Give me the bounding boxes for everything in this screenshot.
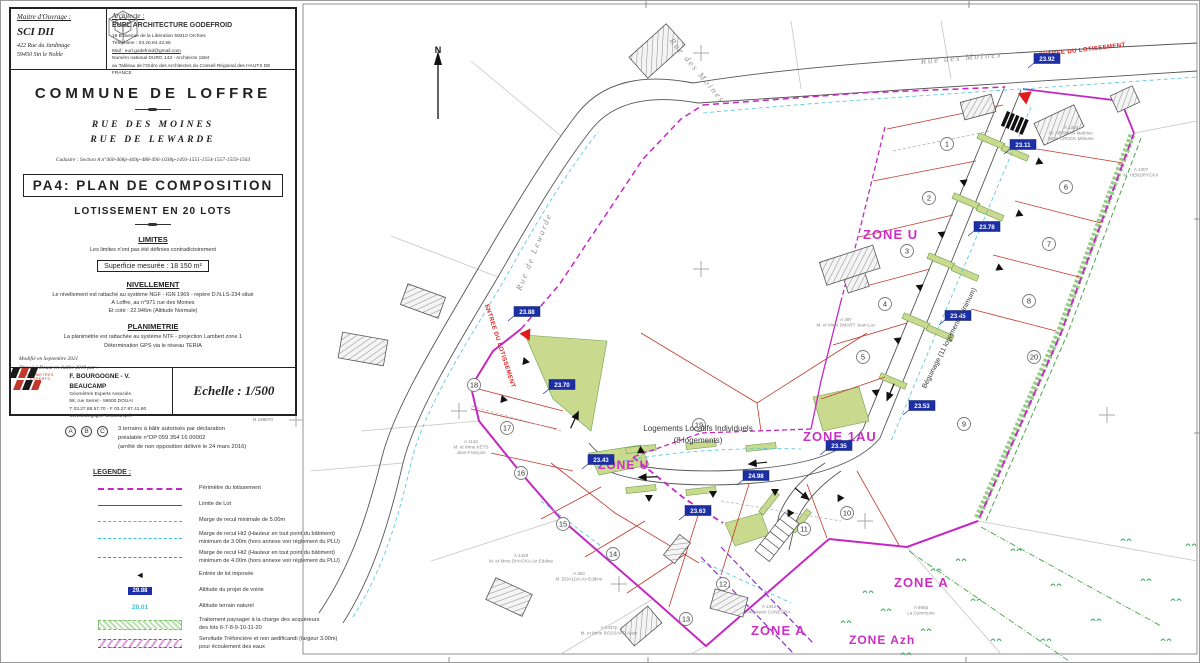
altitude-value: 23.35 bbox=[831, 443, 847, 450]
setback-lines-gray bbox=[471, 131, 991, 521]
zone-labels: ZONE UZONE 1AUZONE UZONE AZONE AZONE Azh bbox=[598, 227, 949, 647]
legend-row: Limite de Lot bbox=[93, 499, 343, 511]
surveyor-address: 58, rue Serret - 59500 DOUAI bbox=[69, 398, 167, 405]
legend-swatch-sample bbox=[98, 521, 182, 522]
lot-number-badge: 1 bbox=[941, 138, 954, 151]
abc-authorization-note: ABC 3 terrains à bâtir autorisés par déc… bbox=[65, 425, 246, 452]
plan-annotation: Logements Locatifs Individuels bbox=[643, 424, 752, 433]
architect-row: EURL ARCHITECTURE GODEFROID 18 B avenue … bbox=[112, 21, 290, 77]
legend-swatch-altbox: 29.88 bbox=[93, 585, 187, 597]
architect-note2: au Tableau de l'Ordre des Architectes du… bbox=[112, 63, 290, 78]
east-landscape-band bbox=[977, 135, 1141, 523]
legend-row: Servitude Tréfoncière et non aedificandi… bbox=[93, 636, 343, 651]
abc-note-line: préalable n°DP 059 354 16 00002 bbox=[118, 434, 246, 443]
vegetation-symbol bbox=[841, 621, 851, 623]
planimetrie-line1: La planimétrie est rattachée au système … bbox=[11, 333, 295, 341]
legend-row: 28.01Altitude terrain naturel bbox=[93, 601, 343, 613]
title-block-footer: GEOMETRES EXPERTS F. BOURGOGNE - V. BEAU… bbox=[11, 367, 295, 414]
altitude-value: 23.63 bbox=[690, 508, 706, 515]
parcel-owner-label: A 497M. et Mme SMART Jean-Luc bbox=[816, 317, 876, 328]
nivellement-line2: A Loffre, au n°971 rue des Moines bbox=[11, 299, 295, 307]
plan-annotation: (8 logements) bbox=[674, 436, 723, 445]
street-name-label: Rue de Lewarde bbox=[513, 211, 554, 293]
limites-text: Les limites n'ont pas été définies contr… bbox=[11, 246, 295, 254]
altitude-value: 23.43 bbox=[593, 457, 609, 464]
street-title-1: RUE DES MOINES bbox=[11, 118, 295, 133]
legend-swatch-sample bbox=[98, 488, 182, 490]
crosswalk bbox=[1001, 111, 1029, 135]
title-block-body: COMMUNE DE LOFFRE RUE DES MOINES RUE DE … bbox=[11, 85, 295, 372]
superficie-box: Superficie mesurée : 18 150 m² bbox=[97, 260, 209, 272]
altitude-boxes: 23.9223.1123.7823.4523.5323.3524.9823.43… bbox=[508, 54, 1060, 521]
architect-note1: Numéro national DURG 143 - Architecte 15… bbox=[112, 55, 290, 62]
lot-entry-markers bbox=[500, 157, 1045, 519]
vegetation-symbol bbox=[1186, 544, 1196, 546]
lot-number-badge: 15 bbox=[557, 518, 570, 531]
scale-label: Echelle : 1/500 bbox=[173, 368, 295, 414]
legend-swatch-green4 bbox=[93, 552, 187, 564]
legend-row: Marge de recul Ht2 (Hauteur en tout poin… bbox=[93, 550, 343, 565]
legend-item-text: Marge de recul Ht2 (Hauteur en tout poin… bbox=[199, 531, 340, 546]
legend-item-text: Servitude Tréfoncière et non aedificandi… bbox=[199, 636, 337, 651]
altitude-leader bbox=[820, 450, 826, 455]
revision-line1: Modifié en Septembre 2021 bbox=[19, 355, 295, 364]
abc-badge: B bbox=[81, 426, 92, 437]
legend-item-text: Limite de Lot bbox=[199, 501, 231, 509]
legend-row: ◄Entrée de lot imposée bbox=[93, 569, 343, 581]
street-name-label: Rue des Moines bbox=[919, 49, 1002, 66]
legend-row: Traitement paysager à la charge des acqu… bbox=[93, 617, 343, 632]
zone-label: ZONE Azh bbox=[849, 633, 915, 647]
vegetation-symbol bbox=[1141, 579, 1151, 581]
altitude-box: 23.78 bbox=[968, 222, 1000, 237]
altitude-box: 23.63 bbox=[679, 506, 711, 521]
lot-number: 5 bbox=[861, 353, 865, 362]
architect-mail: Mail : eurl.godefroid@gmail.com bbox=[112, 48, 290, 55]
altitude-value: 24.98 bbox=[748, 473, 764, 480]
parcel-owner-label: A 463M. DDALDA Az-Eddine bbox=[556, 571, 603, 582]
altitude-box: 23.88 bbox=[508, 307, 540, 322]
legend-swatch-lotline bbox=[93, 499, 187, 511]
legend-item-text: Altitude du projet de voirie bbox=[199, 587, 264, 595]
abc-badges: ABC bbox=[65, 426, 108, 437]
altitude-value: 23.92 bbox=[1039, 56, 1055, 63]
altitude-value: 23.78 bbox=[979, 224, 995, 231]
north-arrow bbox=[434, 51, 442, 119]
altitude-leader bbox=[508, 316, 514, 321]
altitude-value: 23.11 bbox=[1015, 142, 1031, 149]
lot-number: 14 bbox=[609, 550, 617, 559]
vegetation-symbol bbox=[881, 609, 891, 611]
legend-row: Marge de recul minimale de 5.00m bbox=[93, 515, 343, 527]
lot-number: 15 bbox=[559, 520, 567, 529]
nivellement-title: NIVELLEMENT bbox=[11, 280, 295, 289]
street-name-label: Rue des Moines bbox=[667, 35, 728, 105]
altitude-leader bbox=[679, 515, 685, 520]
altitude-leader bbox=[1028, 63, 1034, 68]
legend: LEGENDE : Périmètre du lotissementLimite… bbox=[93, 469, 343, 655]
legend-swatch-sample bbox=[98, 505, 182, 506]
owner-name: SCI DII bbox=[17, 26, 100, 38]
abc-badge: A bbox=[65, 426, 76, 437]
document-subtitle: LOTISSEMENT EN 20 LOTS bbox=[11, 206, 295, 217]
altitude-value: 23.53 bbox=[914, 403, 930, 410]
parcel-owner-label: A 1429M. et Mme DHACKA Az-Eddine bbox=[489, 553, 554, 564]
legend-swatch-sample: 28.01 bbox=[132, 604, 148, 611]
street-title-2: RUE DE LEWARDE bbox=[11, 133, 295, 148]
entrance-label: ENTREE DU LOTISSEMENT bbox=[483, 304, 516, 389]
lot-number-badge: 16 bbox=[515, 467, 528, 480]
lot-number: 3 bbox=[905, 247, 909, 256]
commune-title: COMMUNE DE LOFFRE bbox=[11, 85, 295, 102]
lot-number-badge: 17 bbox=[501, 422, 514, 435]
vegetation-symbol bbox=[1171, 599, 1181, 601]
entrance-arrows bbox=[520, 87, 1032, 344]
legend-title: LEGENDE : bbox=[93, 469, 343, 476]
legend-swatch-sample bbox=[98, 639, 182, 648]
legend-items: Périmètre du lotissementLimite de LotMar… bbox=[93, 483, 343, 651]
legend-swatch-perimeter bbox=[93, 483, 187, 495]
title-block-header: Maitre d'Ouvrage : SCI DII 422 Rue du Ja… bbox=[11, 9, 295, 70]
owner-address-line2: 59450 Sin le Noble bbox=[17, 51, 100, 60]
surveyor-logo bbox=[11, 368, 41, 392]
architect-cube-logo bbox=[107, 9, 139, 45]
lot-number: 6 bbox=[1064, 183, 1068, 192]
north-label: N bbox=[435, 45, 442, 55]
legend-row: Marge de recul Ht2 (Hauteur en tout poin… bbox=[93, 531, 343, 546]
legend-item-text: Périmètre du lotissement bbox=[199, 485, 261, 493]
lot-number-badge: 2 bbox=[923, 192, 936, 205]
abc-note-text: 3 terrains à bâtir autorisés par déclara… bbox=[118, 425, 246, 452]
altitude-leader bbox=[543, 389, 549, 394]
zone-label: ZONE A bbox=[751, 623, 806, 638]
lot-number-badge: 8 bbox=[1023, 295, 1036, 308]
surveyor-name: F. BOURGOGNE - V. BEAUCAMP bbox=[69, 372, 167, 391]
grid-coordinate-label: N 196670 bbox=[253, 417, 273, 422]
surveyor-logo-wrap: GEOMETRES EXPERTS bbox=[16, 372, 64, 410]
surveyor-role: Géomètres Experts Associés bbox=[69, 391, 167, 398]
altitude-leader bbox=[939, 320, 945, 325]
altitude-box: 23.92 bbox=[1028, 54, 1060, 69]
lot-number: 13 bbox=[682, 615, 690, 624]
document-title: PA4: PLAN DE COMPOSITION bbox=[23, 174, 284, 197]
legend-row: 29.88Altitude du projet de voirie bbox=[93, 585, 343, 597]
parcel-owner-label: A 1142M. et Mme KETSJean-François bbox=[454, 439, 489, 455]
lot-number: 16 bbox=[517, 469, 525, 478]
lot-number-badge: 7 bbox=[1043, 238, 1056, 251]
parcel-owner-label: A 1342Indivision CANEGRA bbox=[747, 604, 791, 615]
lot-number-badge: 14 bbox=[607, 548, 620, 561]
nivellement-line3: Et coté : 22.946m (Altitude Normale) bbox=[11, 307, 295, 315]
surveyor-phone: T 03.27.88.57.70 - F 03.27.87.41.90 bbox=[69, 406, 167, 413]
lot-number: 1 bbox=[945, 140, 949, 149]
lot-number-badge: 3 bbox=[901, 245, 914, 258]
planimetrie-text: La planimétrie est rattachée au système … bbox=[11, 333, 295, 350]
vegetation-symbol bbox=[1041, 639, 1051, 641]
lot-number: 9 bbox=[962, 420, 966, 429]
surveyor-panel: GEOMETRES EXPERTS F. BOURGOGNE - V. BEAU… bbox=[11, 368, 173, 414]
planimetrie-title: PLANIMETRIE bbox=[11, 322, 295, 331]
surveyor-details: F. BOURGOGNE - V. BEAUCAMP Géomètres Exp… bbox=[69, 372, 167, 410]
landscaped-areas bbox=[525, 133, 1029, 546]
legend-swatch-sample bbox=[98, 557, 182, 558]
lot-number: 12 bbox=[719, 580, 727, 589]
vegetation-symbol bbox=[1051, 584, 1061, 586]
lot-number: 2 bbox=[927, 194, 931, 203]
legend-swatch-sample bbox=[98, 538, 182, 539]
owner-panel: Maitre d'Ouvrage : SCI DII 422 Rue du Ja… bbox=[11, 9, 107, 69]
lot-number-badge: 18 bbox=[468, 379, 481, 392]
legend-swatch-mhatch bbox=[93, 638, 187, 650]
legend-swatch-sample bbox=[98, 620, 182, 630]
setback-lines-green bbox=[909, 527, 1161, 661]
zone-label: ZONE U bbox=[863, 227, 918, 242]
lot-number-badge: 5 bbox=[857, 351, 870, 364]
legend-swatch-ghatch bbox=[93, 619, 187, 631]
nivellement-text: Le nivellement est rattaché au système N… bbox=[11, 291, 295, 316]
lot-number: 18 bbox=[470, 381, 478, 390]
vegetation-symbol bbox=[956, 559, 966, 561]
plan-annotation: Béguinage (11 logements minimum) bbox=[921, 287, 978, 390]
street-titles: RUE DES MOINES RUE DE LEWARDE bbox=[11, 118, 295, 148]
lot-number-badge: 11 bbox=[798, 523, 811, 536]
existing-buildings bbox=[338, 24, 1140, 646]
legend-item-text: Marge de recul Ht2 (Hauteur en tout poin… bbox=[199, 550, 340, 565]
owner-label: Maitre d'Ouvrage : bbox=[17, 13, 100, 21]
abc-badge: C bbox=[97, 426, 108, 437]
zone-label: ZONE A bbox=[894, 575, 949, 590]
lot-number: 17 bbox=[503, 424, 511, 433]
lot-number: 20 bbox=[1030, 353, 1038, 362]
title-block: Maitre d'Ouvrage : SCI DII 422 Rue du Ja… bbox=[9, 7, 297, 416]
altitude-value: 23.70 bbox=[554, 382, 570, 389]
parcel-owner-label: A 968pLa Commune bbox=[907, 605, 935, 616]
plan-sheet: ZONE UZONE 1AUZONE UZONE AZONE AZONE Azh… bbox=[0, 0, 1200, 663]
legend-swatch-gray5 bbox=[93, 515, 187, 527]
parcel-owner-label: A 1307M. HENDRYCKX bbox=[1123, 167, 1158, 178]
legend-swatch-sample: ◄ bbox=[136, 571, 145, 580]
lot-number-badge: 9 bbox=[958, 418, 971, 431]
architect-panel: Architecte : EURL ARCHITECTURE GODEFROID… bbox=[107, 9, 295, 69]
vegetation-symbol bbox=[1091, 619, 1101, 621]
vegetation-symbol bbox=[863, 591, 873, 593]
legend-item-text: Traitement paysager à la charge des acqu… bbox=[199, 617, 319, 632]
vegetation-symbol bbox=[1011, 549, 1021, 551]
vegetation-symbol bbox=[921, 629, 931, 631]
legend-swatch-triangle: ◄ bbox=[93, 569, 187, 581]
limites-title: LIMITES bbox=[11, 235, 295, 244]
lot-number: 4 bbox=[883, 300, 887, 309]
lot-number-badge: 10 bbox=[841, 507, 854, 520]
legend-swatch-cyan3 bbox=[93, 533, 187, 545]
lot-number-badge: 20 bbox=[1028, 351, 1041, 364]
lot-number: 11 bbox=[800, 525, 808, 534]
nivellement-line1: Le nivellement est rattaché au système N… bbox=[11, 291, 295, 299]
legend-swatch-altnat: 28.01 bbox=[93, 601, 187, 613]
altitude-box: 23.53 bbox=[903, 401, 935, 416]
surveyor-web: www.bourgogne-beaucamp.fr bbox=[69, 413, 167, 420]
altitude-value: 23.88 bbox=[519, 309, 535, 316]
legend-item-text: Marge de recul minimale de 5.00m bbox=[199, 517, 285, 525]
owner-address-line1: 422 Rue du Jardinage bbox=[17, 42, 100, 51]
legend-item-text: Altitude terrain naturel bbox=[199, 603, 254, 611]
altitude-leader bbox=[968, 231, 974, 236]
lot-number-badge: 12 bbox=[717, 578, 730, 591]
lot-number-badge: 6 bbox=[1060, 181, 1073, 194]
vegetation-symbol bbox=[1161, 639, 1171, 641]
lot-number: 7 bbox=[1047, 240, 1051, 249]
abc-note-line: 3 terrains à bâtir autorisés par déclara… bbox=[118, 425, 246, 434]
divider-ornament bbox=[135, 109, 171, 113]
lot-number-badge: 13 bbox=[680, 613, 693, 626]
abc-note-line: (arrêté de non opposition délivré le 24 … bbox=[118, 443, 246, 452]
lot-number-badge: 4 bbox=[879, 298, 892, 311]
planimetrie-line2: Détermination GPS via le réseau TERIA bbox=[11, 342, 295, 350]
altitude-leader bbox=[582, 464, 588, 469]
lot-number: 8 bbox=[1027, 297, 1031, 306]
legend-row: Périmètre du lotissement bbox=[93, 483, 343, 495]
lot-number: 10 bbox=[843, 509, 851, 518]
legend-swatch-sample: 29.88 bbox=[128, 587, 151, 595]
owner-address: 422 Rue du Jardinage 59450 Sin le Noble bbox=[17, 42, 100, 60]
legend-item-text: Entrée de lot imposée bbox=[199, 571, 253, 579]
vegetation-symbol bbox=[1121, 539, 1131, 541]
vegetation-symbol bbox=[991, 639, 1001, 641]
divider-ornament bbox=[135, 224, 171, 228]
